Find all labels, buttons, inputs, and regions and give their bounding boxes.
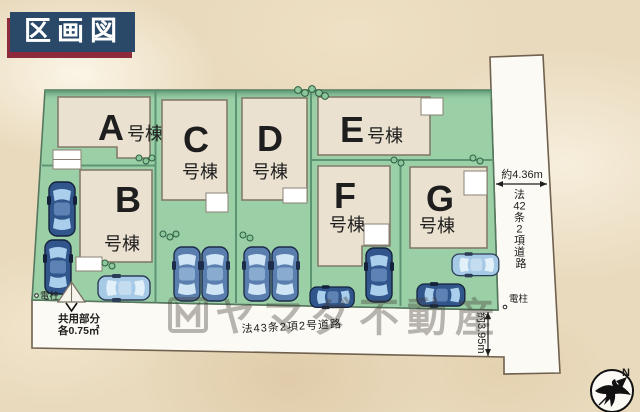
balcony [206, 193, 228, 212]
building-g: G 号棟 [410, 167, 487, 248]
building-g-label: G [426, 178, 454, 219]
road-depth-measurement: 約3.95m [475, 312, 491, 356]
plot-map: A号棟 B 号棟 C 号棟 D 号棟 E号棟 F [0, 0, 640, 412]
balcony [283, 188, 307, 203]
balcony [421, 98, 443, 115]
car-icon [200, 247, 230, 301]
building-c-label-suffix: 号棟 [182, 162, 218, 182]
building-e: E号棟 [318, 97, 443, 155]
north-label: N [622, 367, 630, 379]
utility-pole-left-label: 電柱 [40, 290, 60, 302]
car-icon [172, 247, 202, 301]
balcony [364, 224, 389, 245]
car-icon [98, 274, 150, 302]
car-icon [452, 252, 499, 277]
plot-map-page: 区画図 [0, 0, 640, 412]
building-c-label: C [183, 119, 209, 160]
road-width-label: 約4.36m [501, 167, 543, 181]
compass-icon: N [591, 367, 633, 412]
road-width-measurement: 約4.36m [496, 167, 547, 187]
car-icon [242, 247, 272, 301]
balcony [464, 171, 487, 195]
building-b-label-suffix: 号棟 [104, 234, 140, 254]
car-icon [270, 247, 300, 301]
common-area-label-1: 共用部分 [58, 312, 100, 325]
building-d: D 号棟 [242, 98, 307, 203]
building-f-label: F [334, 175, 356, 216]
building-d-label-suffix: 号棟 [252, 162, 288, 182]
car-icon [47, 182, 77, 236]
building-g-label-suffix: 号棟 [419, 216, 455, 236]
balcony [76, 257, 102, 271]
building-f-label-suffix: 号棟 [329, 215, 365, 235]
building-b-label: B [115, 179, 141, 220]
page-title: 区画図 [10, 12, 135, 52]
building-d-label: D [257, 118, 283, 159]
building-c: C 号棟 [162, 100, 228, 212]
utility-pole-right-label: 電柱 [509, 293, 529, 305]
common-area-label-2: 各0.75㎡ [57, 324, 100, 337]
page-title-text: 区画図 [24, 16, 123, 46]
car-icon [364, 248, 394, 302]
building-b: B 号棟 [76, 170, 152, 271]
